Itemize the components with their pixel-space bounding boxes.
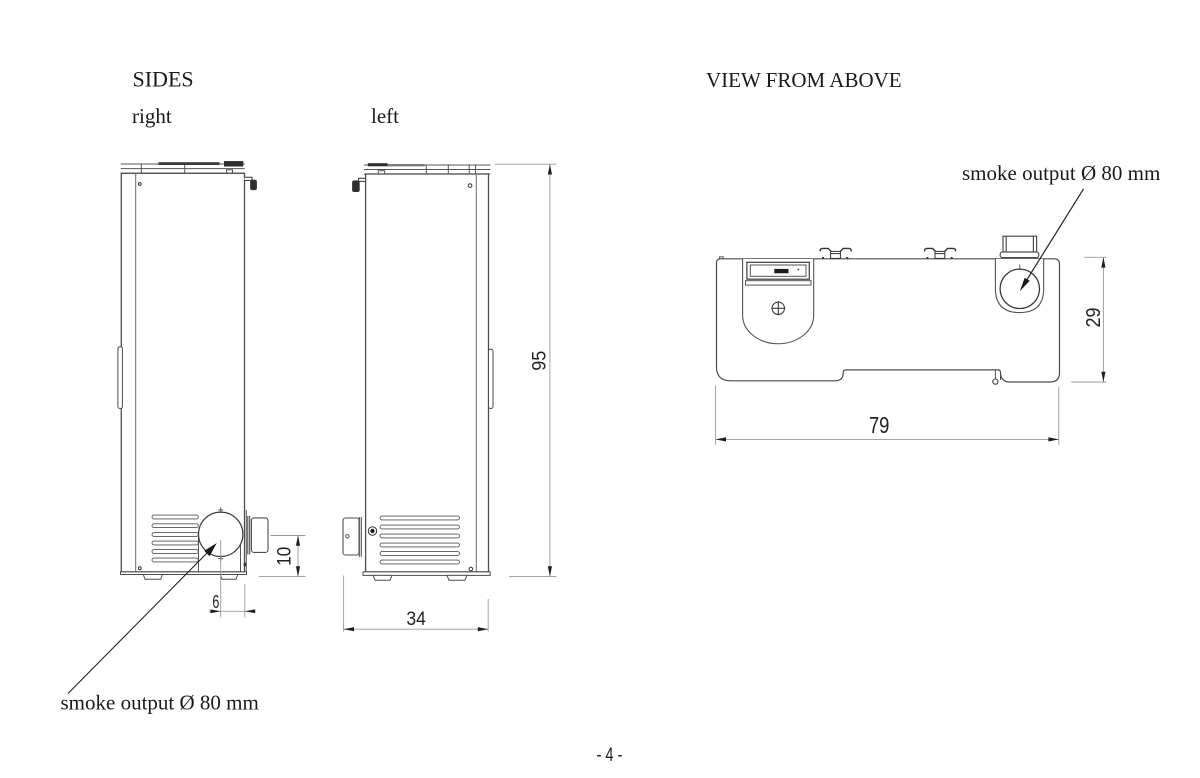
svg-text:34: 34 — [406, 608, 426, 630]
svg-text:smoke output Ø 80 mm: smoke output Ø 80 mm — [61, 691, 259, 715]
svg-text:95: 95 — [530, 351, 551, 371]
svg-text:6: 6 — [212, 591, 219, 612]
svg-text:left: left — [371, 104, 399, 128]
svg-text:79: 79 — [869, 412, 890, 438]
svg-text:10: 10 — [274, 547, 295, 566]
svg-text:smoke output Ø 80 mm: smoke output Ø 80 mm — [962, 161, 1160, 185]
svg-text:SIDES: SIDES — [133, 67, 194, 92]
svg-text:- 4 -: - 4 - — [597, 745, 623, 766]
svg-text:VIEW FROM ABOVE: VIEW FROM ABOVE — [706, 68, 902, 92]
svg-text:right: right — [132, 104, 172, 128]
svg-text:29: 29 — [1083, 308, 1105, 328]
